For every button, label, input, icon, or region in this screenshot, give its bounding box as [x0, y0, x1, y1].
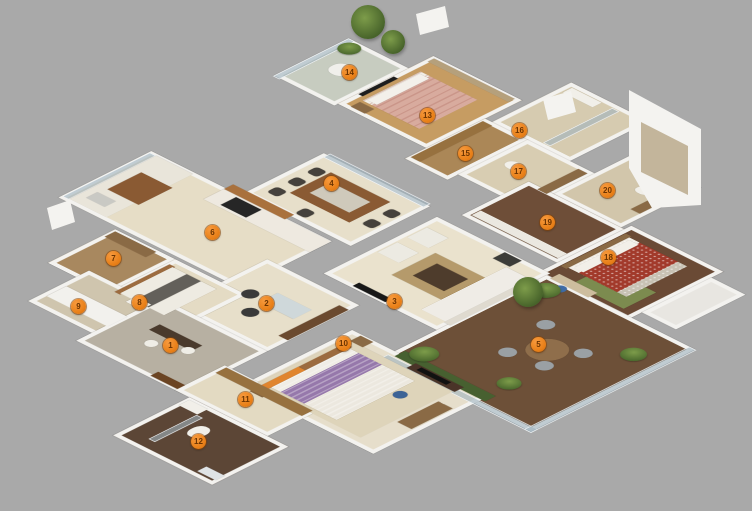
isometric-plan	[0, 0, 752, 511]
floor-plan-stage: 1234567891011121314151617181920	[0, 0, 752, 511]
